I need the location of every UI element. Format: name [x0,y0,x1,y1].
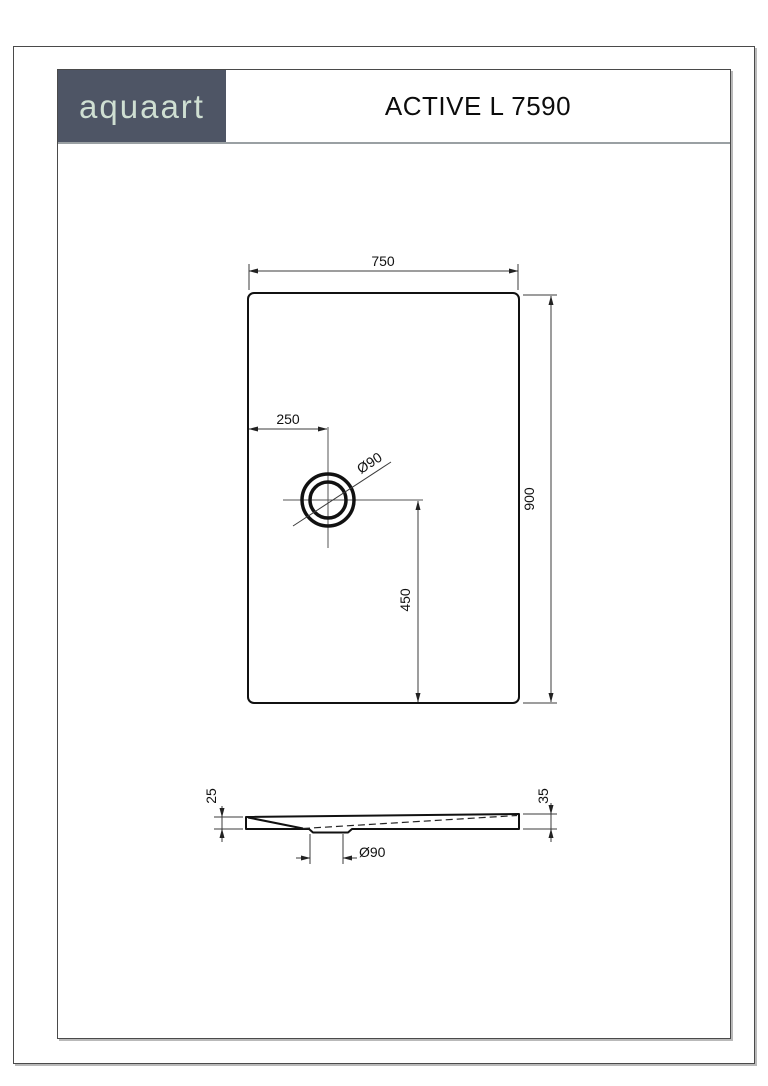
dimension-drain-recess: Ø90 [296,834,386,864]
side-view: 25 35 Ø90 [203,788,557,864]
dimension-left-edge-25: 25 [203,788,243,842]
dim-label-250: 250 [276,411,300,427]
dim-label-drain-recess: Ø90 [359,844,386,860]
dim-label-35: 35 [535,788,551,804]
dimension-width-750: 750 [249,253,518,290]
dimension-right-edge-35: 35 [523,788,557,842]
top-view: 750 900 250 Ø90 [248,253,557,703]
tray-outline-top-view [248,293,519,703]
dim-label-450: 450 [397,588,413,612]
dim-label-750: 750 [371,253,395,269]
dim-label-25: 25 [203,788,219,804]
dim-label-900: 900 [521,487,537,511]
dimension-height-900: 900 [521,295,557,703]
technical-drawing: 750 900 250 Ø90 [0,0,768,1086]
